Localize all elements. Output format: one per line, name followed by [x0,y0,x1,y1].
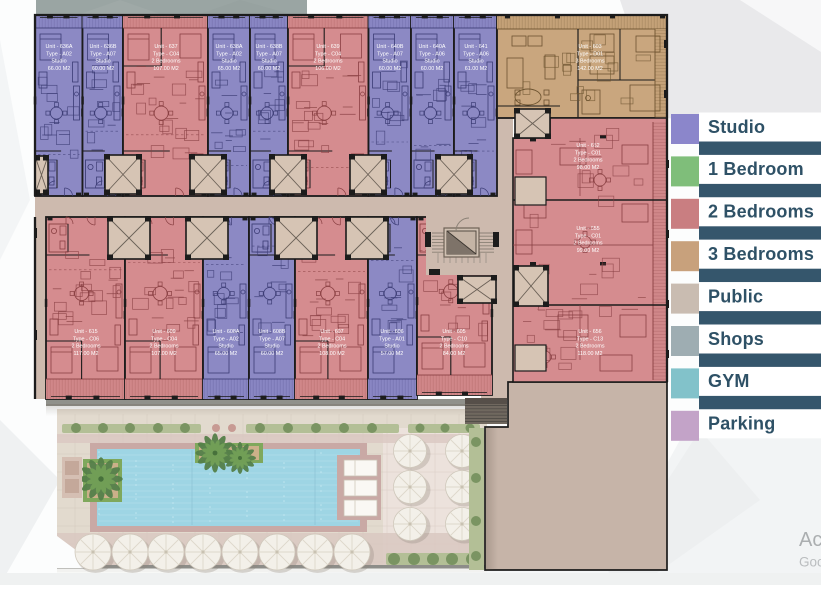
svg-text:Public: Public [708,286,763,306]
svg-text:Unit - 656Type - C132 Bedrooms: Unit - 656Type - C132 Bedrooms118.00 M2 [575,329,604,357]
svg-text:Parking: Parking [708,414,775,434]
svg-text:Shops: Shops [708,329,764,349]
svg-text:GYM: GYM [708,371,750,391]
svg-text:2 Bedrooms: 2 Bedrooms [708,202,814,222]
svg-text:Unit - 609Type - C042 Bedrooms: Unit - 609Type - C042 Bedrooms107.00 M2 [149,329,178,357]
svg-text:Unit - 603Type - D013 Bedrooms: Unit - 603Type - D013 Bedrooms142.00 M2 [575,44,604,72]
svg-text:1 Bedroom: 1 Bedroom [708,159,804,179]
svg-text:Act: Act [799,529,821,551]
svg-text:Goo: Goo [799,555,821,570]
svg-text:3 Bedrooms: 3 Bedrooms [708,244,814,264]
svg-text:Unit - 605Type - C102 Bedrooms: Unit - 605Type - C102 Bedrooms84.00 M2 [439,329,468,357]
svg-text:Unit - 637Type - C042 Bedrooms: Unit - 637Type - C042 Bedrooms107.00 M2 [151,44,180,72]
svg-text:Unit - 655Type - C012 Bedrooms: Unit - 655Type - C012 Bedrooms99.00 M2 [573,226,602,254]
svg-text:Unit - 639Type - C042 Bedrooms: Unit - 639Type - C042 Bedrooms106.00 M2 [313,44,342,72]
svg-text:Studio: Studio [708,117,765,137]
svg-text:Unit - 615Type - C062 Bedrooms: Unit - 615Type - C062 Bedrooms117.00 M2 [71,329,100,357]
svg-text:Unit - 607Type - C042 Bedrooms: Unit - 607Type - C042 Bedrooms108.00 M2 [317,329,346,357]
